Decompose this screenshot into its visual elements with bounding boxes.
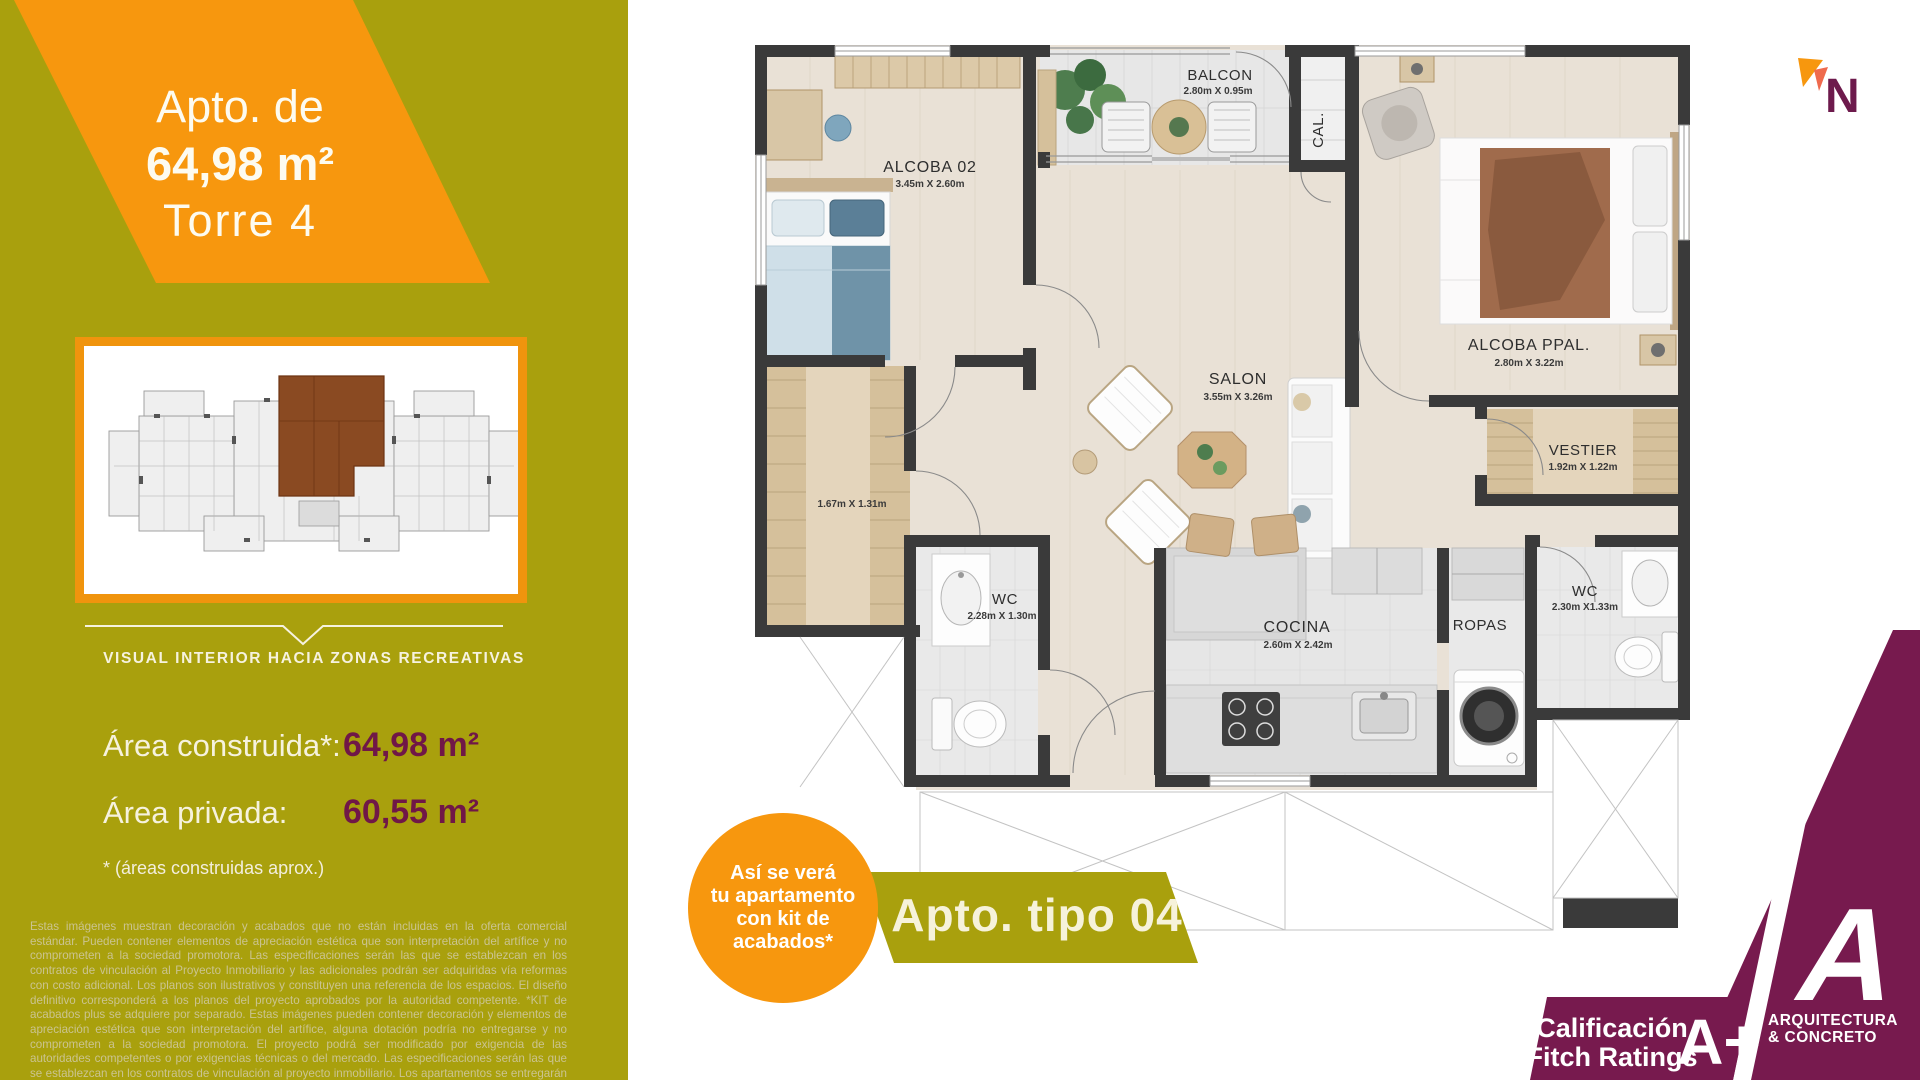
thumbnail-caption: VISUAL INTERIOR HACIA ZONAS RECREATIVAS: [40, 650, 588, 668]
area-footnote: * (áreas construidas aprox.): [103, 858, 324, 879]
kit-line-1: Así se verá: [730, 862, 836, 885]
kit-line-4: acabados*: [733, 931, 833, 954]
apartment-size-banner-text: Apto. de 64,98 m² Torre 4: [30, 78, 450, 249]
label-cal: CAL.: [1310, 112, 1327, 148]
dims-alcoba-ppal: 2.80m X 3.22m: [1495, 358, 1564, 369]
chevron-divider: [85, 616, 505, 652]
fitch-line-1: Calificación: [1536, 1013, 1688, 1043]
dims-vestier-left: 1.67m X 1.31m: [818, 499, 887, 510]
compass-letter: N: [1825, 70, 1860, 123]
label-cocina: COCINA: [1263, 619, 1330, 636]
brand-corner: Calificación Fitch Ratings A+ A ARQUITEC…: [1500, 600, 1920, 1080]
dims-cocina: 2.60m X 2.42m: [1264, 640, 1333, 651]
label-alcoba-ppal: ALCOBA PPAL.: [1468, 337, 1590, 354]
floorplate-thumbnail: [75, 337, 527, 603]
area-privada-value: 60,55 m²: [343, 793, 479, 832]
dims-alcoba02: 3.45m X 2.60m: [896, 179, 965, 190]
north-compass: N: [1788, 48, 1898, 128]
left-info-panel: Apto. de 64,98 m² Torre 4: [0, 0, 628, 1080]
flyer-page: Apto. de 64,98 m² Torre 4: [0, 0, 1920, 1080]
apto-tipo-label: Apto. tipo 04: [877, 888, 1183, 942]
banner-line-torre: Torre 4: [30, 192, 450, 249]
label-alcoba02: ALCOBA 02: [883, 159, 976, 176]
area-construida-label: Área construida*:: [103, 728, 343, 764]
arquitectura-line-2: & CONCRETO: [1768, 1029, 1877, 1046]
dims-wc-left: 2.28m X 1.30m: [968, 611, 1037, 622]
kit-line-2: tu apartamento: [711, 885, 855, 908]
area-privada-label: Área privada:: [103, 795, 343, 831]
dims-vestier-right: 1.92m X 1.22m: [1549, 462, 1618, 473]
label-vestier-right: VESTIER: [1549, 442, 1617, 459]
apto-tipo-banner: Apto. tipo 04: [850, 865, 1210, 965]
label-wc-left: WC: [992, 591, 1018, 608]
dims-balcon: 2.80m X 0.95m: [1184, 86, 1253, 97]
banner-line-size: 64,98 m²: [30, 135, 450, 192]
legal-disclaimer: Estas imágenes muestran decoración y aca…: [30, 920, 567, 1080]
label-balcon: BALCON: [1187, 67, 1252, 84]
floorplate-mini-plan: [84, 346, 518, 594]
area-privada-row: Área privada: 60,55 m²: [103, 793, 603, 832]
arquitectura-line-1: ARQUITECTURA: [1768, 1012, 1898, 1029]
fitch-line-2: Fitch Ratings: [1526, 1042, 1697, 1072]
label-salon: SALON: [1209, 371, 1267, 388]
area-construida-value: 64,98 m²: [343, 726, 479, 765]
kit-acabados-circle: Así se verá tu apartamento con kit de ac…: [688, 813, 878, 1003]
label-wc-right: WC: [1572, 583, 1598, 600]
kit-line-3: con kit de: [736, 908, 829, 931]
area-construida-row: Área construida*: 64,98 m²: [103, 726, 603, 765]
fitch-grade: A+: [1677, 1006, 1761, 1078]
dims-salon: 3.55m X 3.26m: [1204, 392, 1273, 403]
banner-line-apto: Apto. de: [30, 78, 450, 135]
